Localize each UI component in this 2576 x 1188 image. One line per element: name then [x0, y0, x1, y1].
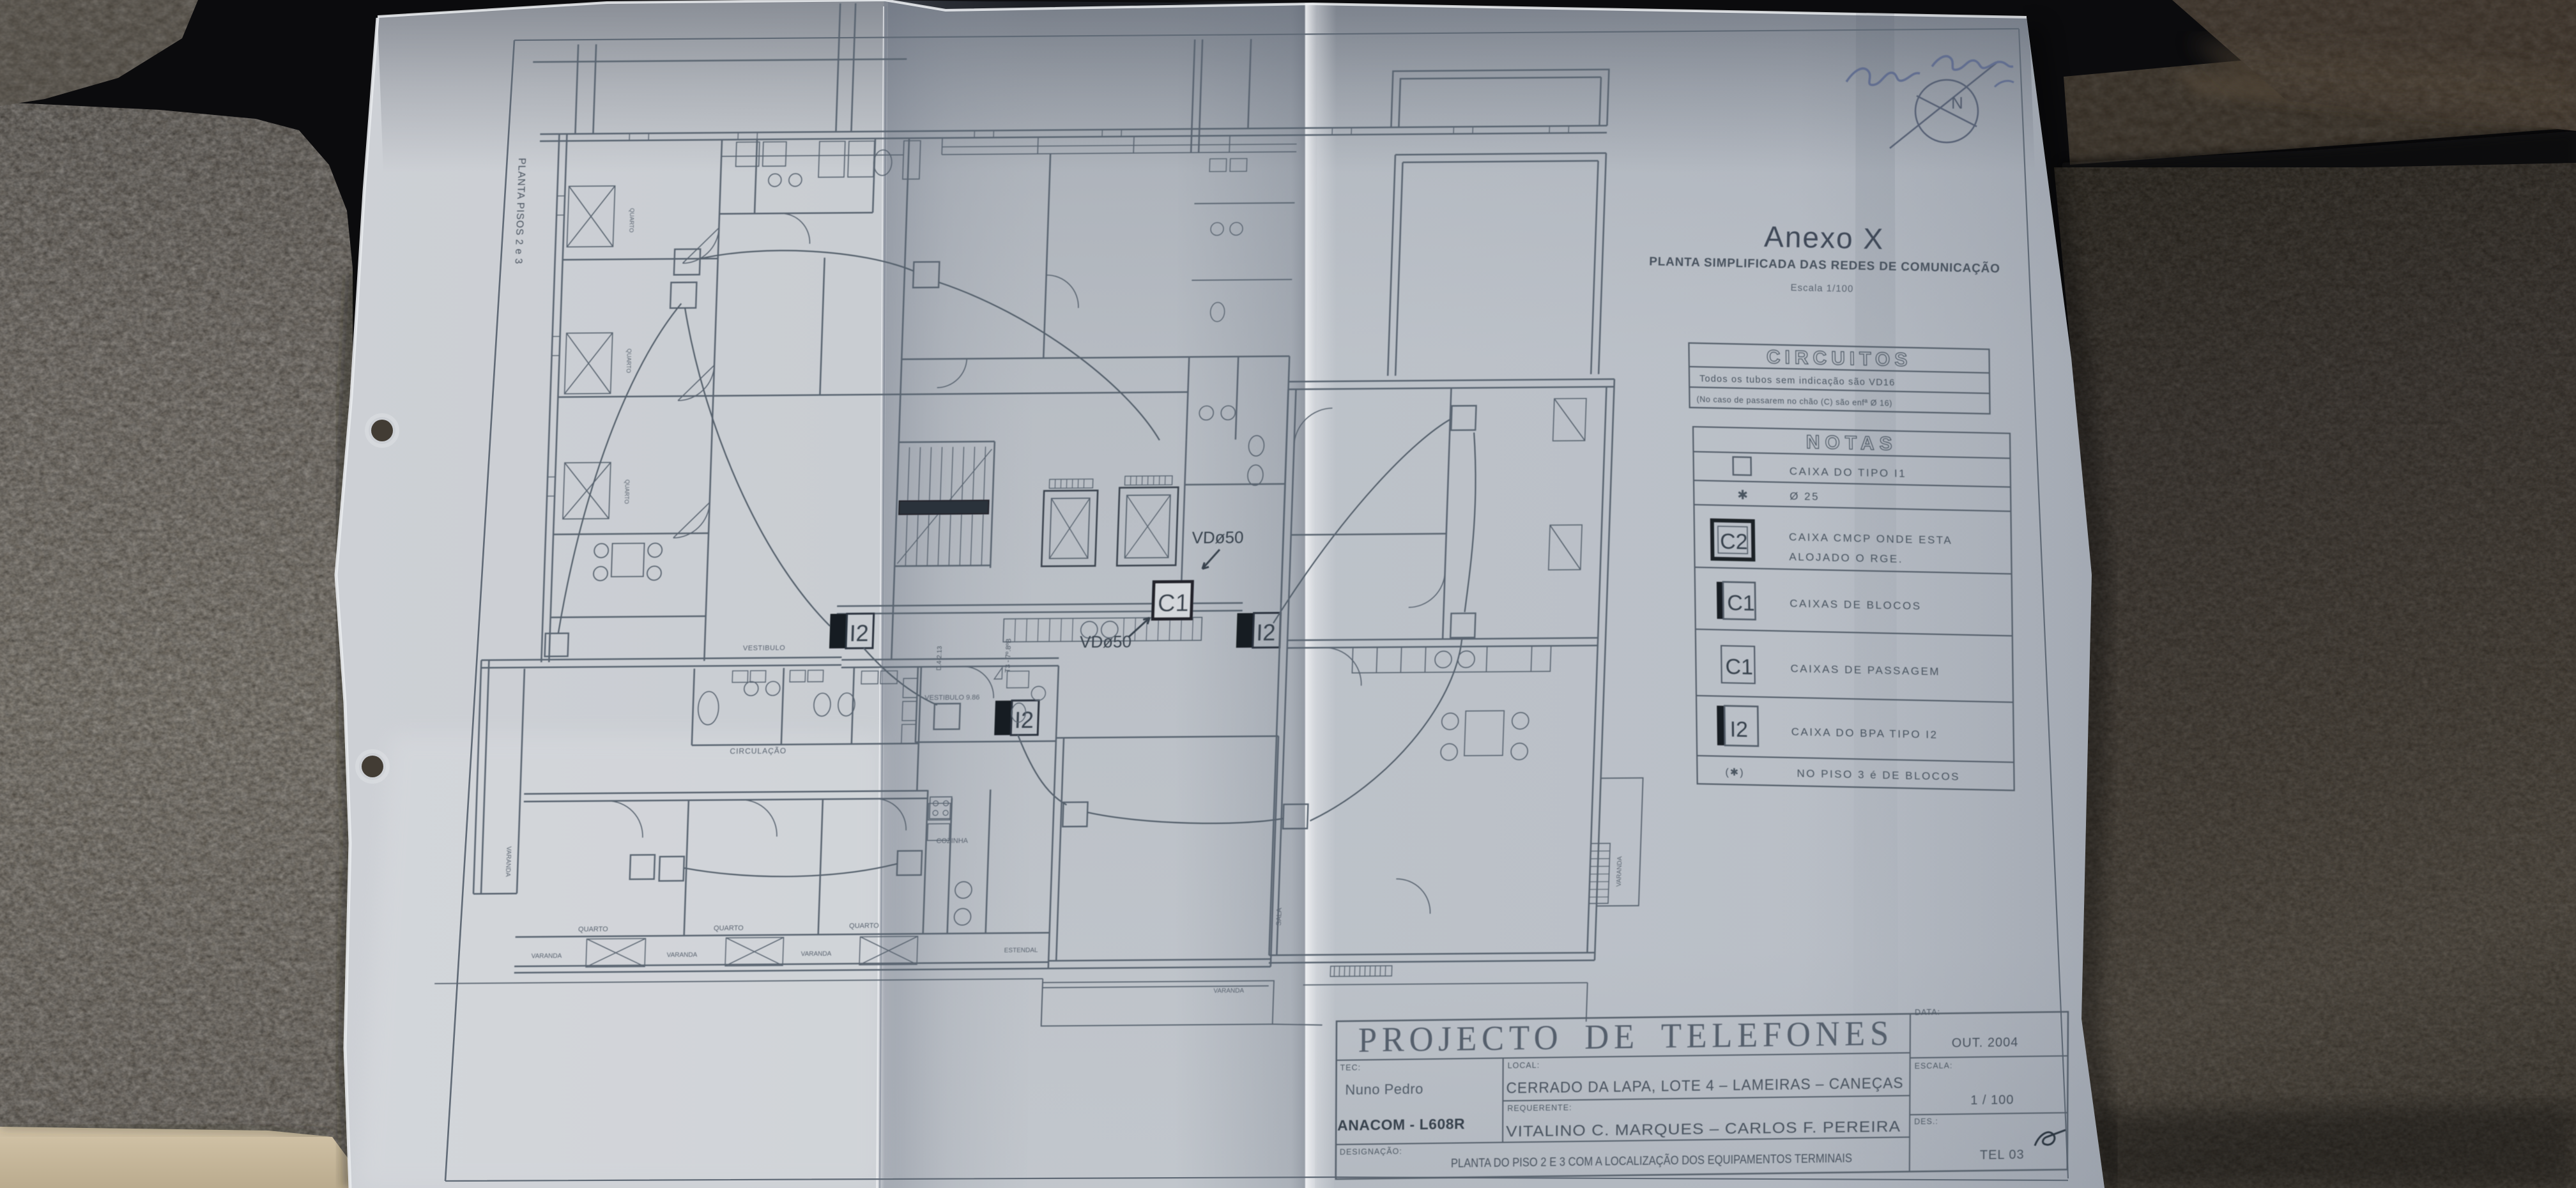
svg-text:ALOJADO O RGE.: ALOJADO O RGE. — [1789, 551, 1903, 565]
svg-text:VARANDA: VARANDA — [531, 952, 562, 959]
svg-text:CAIXA DO TIPO I1: CAIXA DO TIPO I1 — [1790, 465, 1906, 480]
svg-text:SALA: SALA — [1275, 908, 1284, 926]
svg-text:Nuno Pedro: Nuno Pedro — [1345, 1081, 1423, 1098]
svg-text:C1: C1 — [1725, 655, 1753, 680]
svg-text:QUARTO: QUARTO — [578, 925, 608, 933]
svg-text:VESTIBULO: VESTIBULO — [743, 644, 786, 653]
svg-text:Ø 25: Ø 25 — [1790, 490, 1820, 503]
svg-text:I2: I2 — [849, 620, 869, 646]
svg-text:(✱): (✱) — [1725, 767, 1744, 779]
svg-text:N: N — [1951, 93, 1963, 112]
svg-text:C1: C1 — [1727, 591, 1755, 616]
svg-text:VDø50: VDø50 — [1080, 632, 1132, 651]
svg-text:VARANDA: VARANDA — [1213, 987, 1244, 994]
svg-text:✱: ✱ — [1737, 489, 1748, 503]
svg-text:QUARTO: QUARTO — [849, 922, 879, 929]
svg-text:ANACOM - L608R: ANACOM - L608R — [1337, 1115, 1465, 1134]
svg-text:COZINHA: COZINHA — [936, 837, 969, 844]
svg-text:VDø50: VDø50 — [1192, 528, 1244, 547]
svg-text:DATA:: DATA: — [1915, 1008, 1940, 1017]
svg-text:TEC:: TEC: — [1340, 1063, 1361, 1072]
svg-text:QUARTO: QUARTO — [714, 924, 744, 932]
svg-text:I2: I2 — [1729, 717, 1748, 742]
svg-text:VESTIBULO 9.86: VESTIBULO 9.86 — [924, 694, 980, 702]
svg-text:VARANDA: VARANDA — [801, 950, 831, 957]
svg-text:LOCAL:: LOCAL: — [1508, 1061, 1540, 1070]
svg-text:VARANDA: VARANDA — [504, 846, 512, 877]
svg-text:I2: I2 — [1014, 707, 1034, 733]
svg-text:I2: I2 — [1256, 620, 1276, 646]
svg-text:REQUERENTE:: REQUERENTE: — [1507, 1103, 1572, 1113]
svg-text:1 / 100: 1 / 100 — [1970, 1093, 2014, 1108]
svg-text:DES.:: DES.: — [1914, 1117, 1938, 1126]
svg-text:VARANDA: VARANDA — [666, 952, 697, 959]
svg-text:C2: C2 — [1720, 529, 1748, 554]
svg-text:QUARTO: QUARTO — [624, 480, 631, 504]
svg-text:QUARTO: QUARTO — [625, 349, 632, 373]
svg-text:ESTENDAL: ESTENDAL — [1004, 947, 1039, 954]
svg-text:C1: C1 — [1157, 590, 1189, 617]
svg-text:Anexo X: Anexo X — [1764, 220, 1885, 255]
svg-text:ESCALA:: ESCALA: — [1915, 1061, 1953, 1070]
svg-text:NOTAS: NOTAS — [1806, 432, 1897, 455]
svg-text:TEL 03: TEL 03 — [1980, 1148, 2025, 1162]
svg-text:CIRCULAÇÃO: CIRCULAÇÃO — [730, 747, 786, 756]
svg-text:Escala 1/100: Escala 1/100 — [1790, 282, 1853, 294]
svg-text:QUARTO: QUARTO — [628, 208, 635, 232]
svg-text:CIRCUITOS: CIRCUITOS — [1767, 347, 1912, 371]
svg-text:VARANDA: VARANDA — [1616, 856, 1624, 887]
svg-text:DESIGNAÇÃO:: DESIGNAÇÃO: — [1340, 1147, 1402, 1157]
svg-text:PROJECTO DE TELEFONES: PROJECTO DE TELEFONES — [1358, 1014, 1894, 1060]
svg-text:T3 - 7º.8ºB: T3 - 7º.8ºB — [1004, 639, 1013, 673]
svg-text:OUT. 2004: OUT. 2004 — [1952, 1035, 2019, 1050]
